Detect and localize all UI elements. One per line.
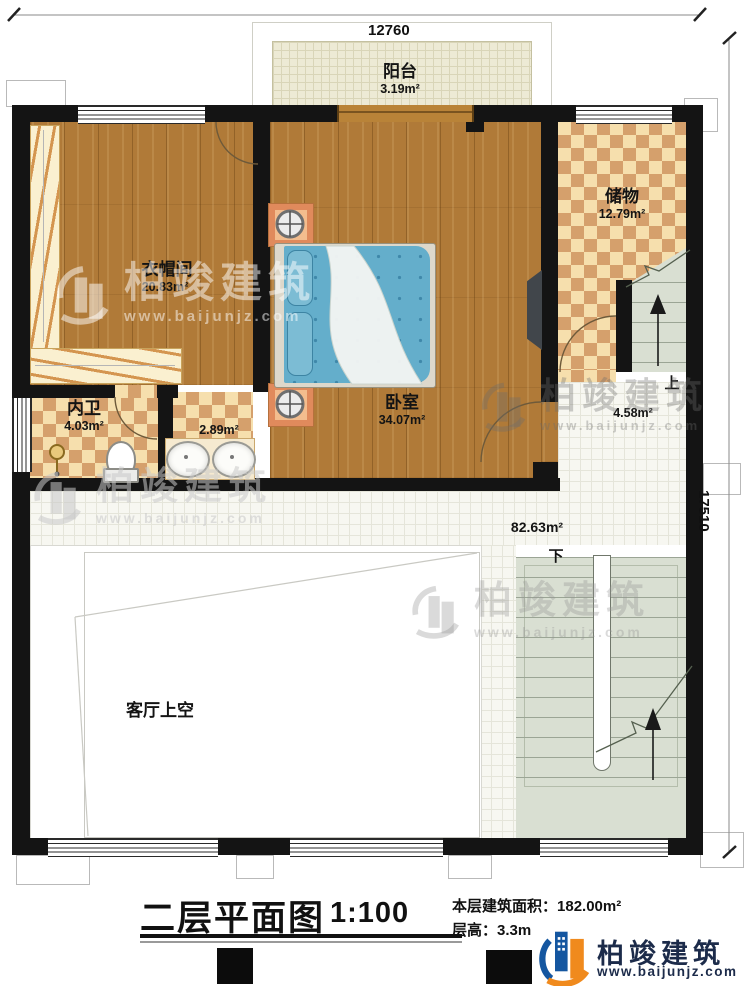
brand-url: www.baijunjz.com	[597, 964, 738, 979]
closet-area: 20.83m²	[142, 281, 189, 294]
stairs-up-label: 上	[664, 376, 679, 392]
window-sill	[16, 855, 90, 885]
column-marker	[217, 948, 253, 984]
storage-label: 储物	[605, 188, 639, 206]
sink-drain	[230, 455, 234, 459]
living-void-label: 客厅上空	[126, 702, 194, 720]
bedroom-label: 卧室	[385, 394, 419, 412]
dimension-tick	[694, 8, 706, 21]
stairs-down-label: 下	[548, 549, 563, 565]
sink-drain	[184, 455, 188, 459]
wall-closet-bedroom	[253, 122, 270, 392]
hallway-floor-strip	[480, 545, 516, 838]
pillow	[287, 250, 313, 306]
stairs-steps-right	[600, 557, 686, 779]
tv-icon	[527, 270, 542, 350]
toilet-tank	[103, 468, 139, 483]
sink-icon	[166, 441, 210, 478]
stairs-steps-left	[516, 557, 600, 779]
storage-door-opening	[558, 370, 616, 382]
sink-icon	[212, 441, 256, 478]
window-sill	[700, 832, 744, 868]
window-sill	[6, 80, 66, 107]
floor-plan-canvas: 阳台 3.19m² 衣帽间 20.83m² 卧室 34.07m² 储物 12.7…	[0, 0, 750, 990]
title-underline-thin	[140, 941, 462, 943]
floor-area-label: 本层建筑面积：	[452, 898, 557, 915]
living-void-inner-outline	[84, 552, 480, 838]
stairs-up-steps	[632, 282, 686, 372]
wall-stub-bedroom-door	[533, 462, 558, 491]
wall-storage-south-a	[541, 370, 558, 382]
stair-landing-floor	[558, 382, 686, 491]
title-underline	[140, 934, 462, 938]
window-top-left	[78, 105, 205, 124]
window-bottom-1	[48, 838, 218, 857]
window-sill	[448, 855, 492, 879]
column-marker	[486, 950, 532, 984]
bathroom-label: 内卫	[67, 400, 101, 418]
dimension-tick	[723, 32, 736, 44]
dimension-right-label: 17510	[695, 490, 712, 532]
dimension-tick	[8, 8, 20, 21]
floor-height-value: 3.3m	[497, 922, 531, 939]
wardrobe-rail	[35, 365, 175, 366]
stair-landing-area: 4.58m²	[613, 407, 653, 420]
wardrobe-left	[30, 125, 60, 349]
window-left-bathroom	[12, 398, 32, 472]
vanity-area: 2.89m²	[199, 424, 239, 437]
window-top-right	[576, 105, 672, 124]
floor-area-info: 本层建筑面积：182.00m²	[452, 895, 621, 916]
closet-label: 衣帽间	[142, 261, 193, 279]
wall-right	[686, 105, 703, 855]
nightstand	[268, 203, 314, 247]
balcony-sliding-door	[337, 105, 474, 122]
wall-bedroom-south	[253, 478, 560, 491]
window-sill	[236, 855, 274, 879]
wall-stub-balcony-door	[466, 122, 484, 132]
stairs-center-rail	[593, 555, 611, 771]
wall-stub-closet-door	[253, 122, 270, 133]
scale-label: 1:100	[330, 897, 409, 930]
bedroom-area: 34.07m²	[379, 414, 426, 427]
wall-closet-bathroom	[12, 385, 115, 398]
bathroom-area: 4.03m²	[64, 420, 104, 433]
wardrobe-bottom	[30, 348, 182, 384]
balcony-label: 阳台	[383, 63, 417, 81]
window-bottom-3	[540, 838, 668, 857]
wardrobe-rail	[43, 130, 44, 342]
window-bottom-2	[290, 838, 443, 857]
bedroom-door-opening	[541, 402, 558, 462]
floor-area-value: 182.00m²	[557, 898, 621, 915]
hallway-area: 82.63m²	[511, 520, 563, 535]
wall-stair-stub	[616, 280, 632, 372]
pillow	[287, 312, 313, 376]
balcony-area: 3.19m²	[380, 83, 420, 96]
closet-floor	[30, 122, 253, 385]
nightstand	[268, 383, 314, 427]
brand-logo-icon	[537, 926, 591, 986]
wall-bedroom-storage	[541, 122, 558, 402]
bathroom-door-opening	[115, 385, 157, 398]
floor-height-label: 层高：	[452, 922, 497, 939]
floor-height-info: 层高：3.3m	[452, 919, 531, 940]
storage-area: 12.79m²	[599, 208, 646, 221]
hallway-floor	[30, 491, 686, 545]
dimension-top-label: 12760	[368, 22, 410, 39]
